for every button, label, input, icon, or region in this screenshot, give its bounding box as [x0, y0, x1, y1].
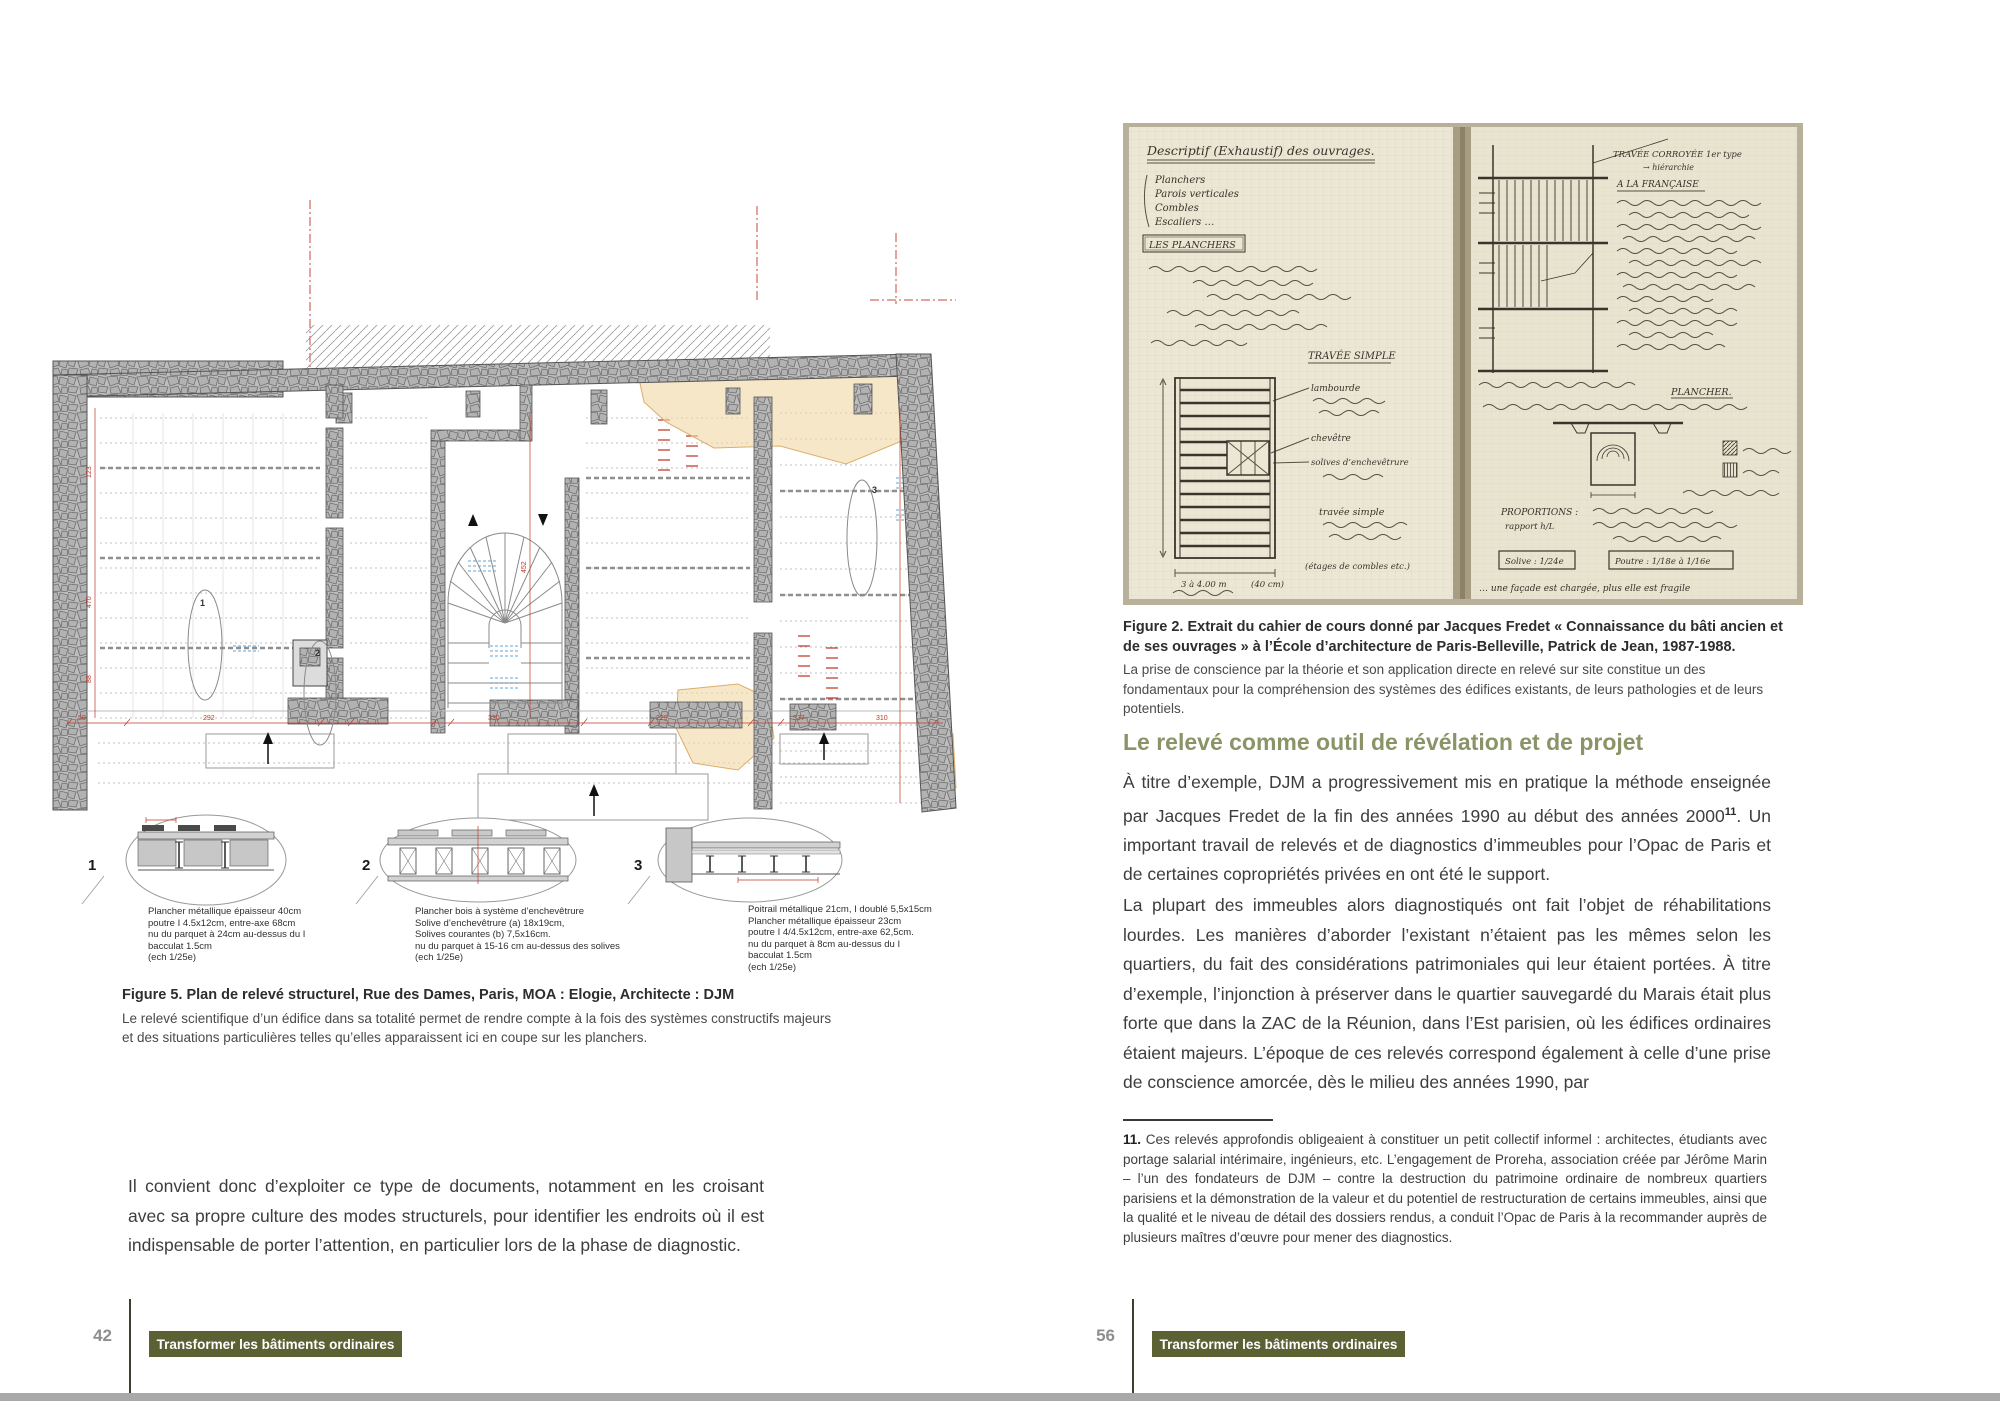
notebook-hierarchie: → hiérarchie: [1643, 163, 1694, 172]
notebook-title: Descriptif (Exhaustif) des ouvrages.: [1146, 143, 1375, 158]
svg-text:310: 310: [876, 715, 888, 722]
svg-text:229: 229: [656, 715, 668, 722]
notebook-travee-corroyee: TRAVÉE CORROYÉE 1er type: [1613, 148, 1742, 160]
paragraph-1-text: À titre d’exemple, DJM a progressivement…: [1123, 772, 1771, 825]
notebook-bottom-line: … une façade est chargée, plus elle est …: [1479, 583, 1690, 594]
section-detail-3: 3: [628, 818, 842, 904]
left-page-number: 42: [70, 1326, 112, 1346]
section-heading: Le relevé comme outil de révélation et d…: [1123, 729, 1643, 756]
book-spread: 292 330 229 337 310 50 123 470 88 452 1 …: [0, 0, 2000, 1401]
right-footer-rule: [1132, 1299, 1134, 1394]
section-number-1: 1: [88, 857, 96, 874]
svg-text:337: 337: [793, 715, 805, 722]
section-detail-2: 2: [356, 818, 576, 904]
footnote-reference-11: 11: [1725, 806, 1737, 818]
figure5-caption-title: Figure 5. Plan de relevé structurel, Rue…: [122, 986, 842, 1006]
notebook-rapport: rapport h/L: [1505, 522, 1555, 532]
figure2-caption: Figure 2. Extrait du cahier de cours don…: [1123, 618, 1783, 719]
plan-entry-arrows: [263, 514, 829, 816]
figure5-caption: Figure 5. Plan de relevé structurel, Rue…: [122, 986, 842, 1048]
notebook-solives: solives d’enchevêtrure: [1311, 457, 1409, 468]
right-paragraph-2: La plupart des immeubles alors diagnosti…: [1123, 891, 1771, 1098]
figure5-caption-body: Le relevé scientifique d’un édifice dans…: [122, 1009, 842, 1048]
notebook-boxed-heading: LES PLANCHERS: [1148, 240, 1236, 251]
section-1-notes: Plancher métallique épaisseur 40cm poutr…: [148, 906, 348, 964]
svg-text:470: 470: [86, 596, 93, 608]
left-footer-rule: [129, 1299, 131, 1394]
svg-text:292: 292: [203, 715, 215, 722]
notebook-lambourde: lambourde: [1311, 384, 1360, 394]
svg-text:88: 88: [86, 675, 93, 683]
notebook-travee-simple: TRAVÉE SIMPLE: [1308, 350, 1396, 362]
notebook-list-4: Escaliers …: [1154, 217, 1214, 228]
plan-joist-lines: [98, 413, 938, 803]
notebook-list-3: Combles: [1155, 203, 1199, 214]
svg-text:452: 452: [521, 561, 528, 573]
notebook-a-la-francaise: A LA FRANÇAISE: [1616, 180, 1699, 190]
notebook-dim1: 3 à 4.00 m: [1181, 579, 1227, 590]
notebook-chevetre: chevêtre: [1311, 433, 1351, 444]
figure5-floor-plan: 292 330 229 337 310 50 123 470 88 452 1 …: [38, 178, 958, 970]
left-body-paragraph: Il convient donc d’exploiter ce type de …: [128, 1172, 764, 1261]
notebook-travee-simple-2: travée simple: [1319, 507, 1385, 518]
svg-text:50: 50: [78, 715, 86, 722]
section-3-notes: Poitrail métallique 21cm, I doublé 5,5x1…: [748, 904, 968, 973]
section-detail-1: 1: [82, 815, 286, 905]
footnote-number: 11.: [1123, 1132, 1141, 1147]
svg-text:123: 123: [86, 466, 93, 478]
right-page-number: 56: [1073, 1326, 1115, 1346]
figure2-caption-body: La prise de conscience par la théorie et…: [1123, 660, 1783, 719]
section-number-2: 2: [362, 857, 370, 874]
notebook-solive-ratio: Solive : 1/24e: [1505, 557, 1564, 567]
notebook-etages: (étages de combles etc.): [1305, 561, 1410, 572]
footnote-text: Ces relevés approfondis obligeaient à co…: [1123, 1132, 1767, 1245]
notebook-list-2: Parois verticales: [1154, 189, 1239, 200]
notebook-list-1: Planchers: [1154, 175, 1205, 186]
plan-ellipse-label-3: 3: [872, 485, 877, 495]
plan-ellipse-label-1: 1: [200, 598, 205, 608]
section-2-notes: Plancher bois à système d’enchevêtrure S…: [415, 906, 655, 964]
figure2-notebook-photo: Descriptif (Exhaustif) des ouvrages. Pla…: [1123, 123, 1803, 605]
notebook-legend-rubble: [1723, 463, 1737, 477]
footnote-rule: [1123, 1119, 1273, 1121]
plan-ellipse-label-2: 2: [315, 648, 320, 658]
bottom-scroll-bar: [0, 1393, 2000, 1401]
right-footer-badge: Transformer les bâtiments ordinaires: [1152, 1331, 1405, 1357]
notebook-legend-stone: [1723, 441, 1737, 455]
right-paragraph-1: À titre d’exemple, DJM a progressivement…: [1123, 768, 1771, 890]
notebook-plancher: PLANCHER.: [1670, 387, 1732, 398]
plan-joist-bundles: [100, 468, 934, 699]
svg-text:330: 330: [488, 715, 500, 722]
left-footer-badge: Transformer les bâtiments ordinaires: [149, 1331, 402, 1357]
notebook-poutre-ratio: Poutre : 1/18e à 1/16e: [1614, 556, 1710, 567]
figure2-caption-title: Figure 2. Extrait du cahier de cours don…: [1123, 618, 1783, 657]
plan-grid-verticals: [133, 413, 283, 718]
plan-red-marks: [658, 420, 838, 698]
section-number-3: 3: [634, 857, 642, 874]
notebook-proportions: PROPORTIONS :: [1500, 508, 1578, 518]
footnote-11: 11. Ces relevés approfondis obligeaient …: [1123, 1130, 1767, 1247]
plan-staircase: [448, 533, 562, 708]
notebook-dim2: (40 cm): [1251, 579, 1284, 590]
